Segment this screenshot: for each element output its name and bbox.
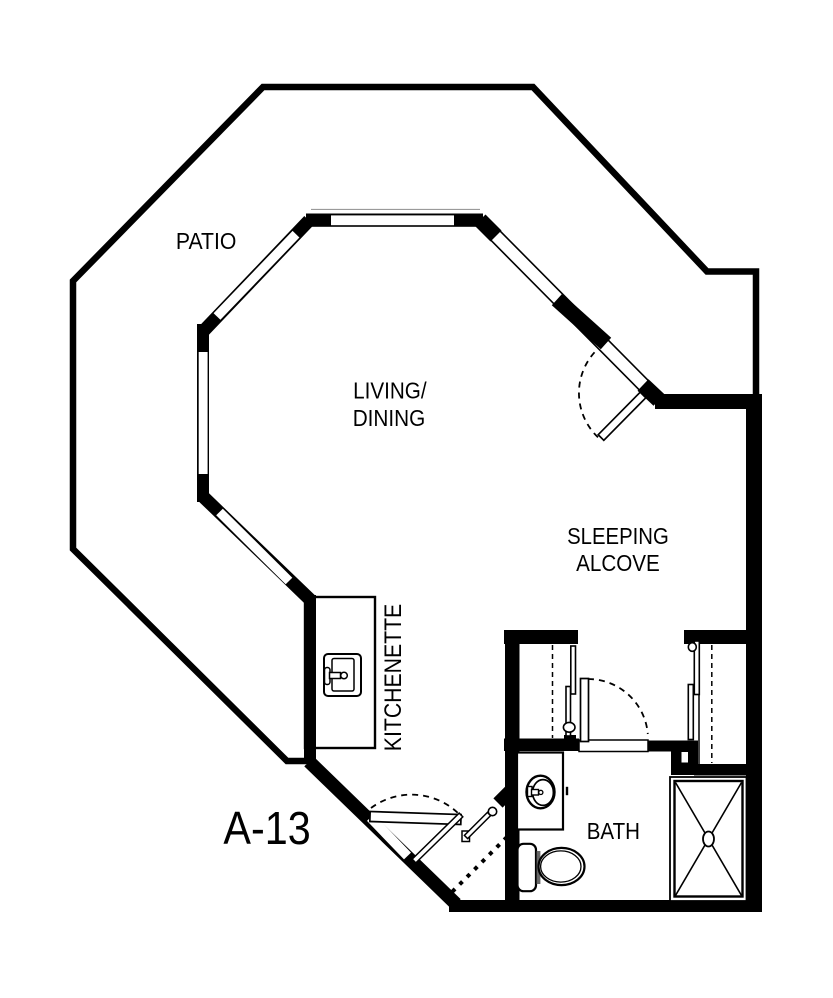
svg-text:LIVING/: LIVING/: [353, 378, 427, 404]
svg-text:ALCOVE: ALCOVE: [576, 550, 660, 576]
svg-text:DINING: DINING: [353, 405, 426, 431]
svg-text:KITCHENETTE: KITCHENETTE: [380, 604, 407, 751]
svg-text:A-13: A-13: [223, 802, 310, 854]
svg-text:SLEEPING: SLEEPING: [567, 523, 669, 549]
svg-text:PATIO: PATIO: [176, 228, 237, 254]
svg-text:BATH: BATH: [587, 818, 640, 844]
